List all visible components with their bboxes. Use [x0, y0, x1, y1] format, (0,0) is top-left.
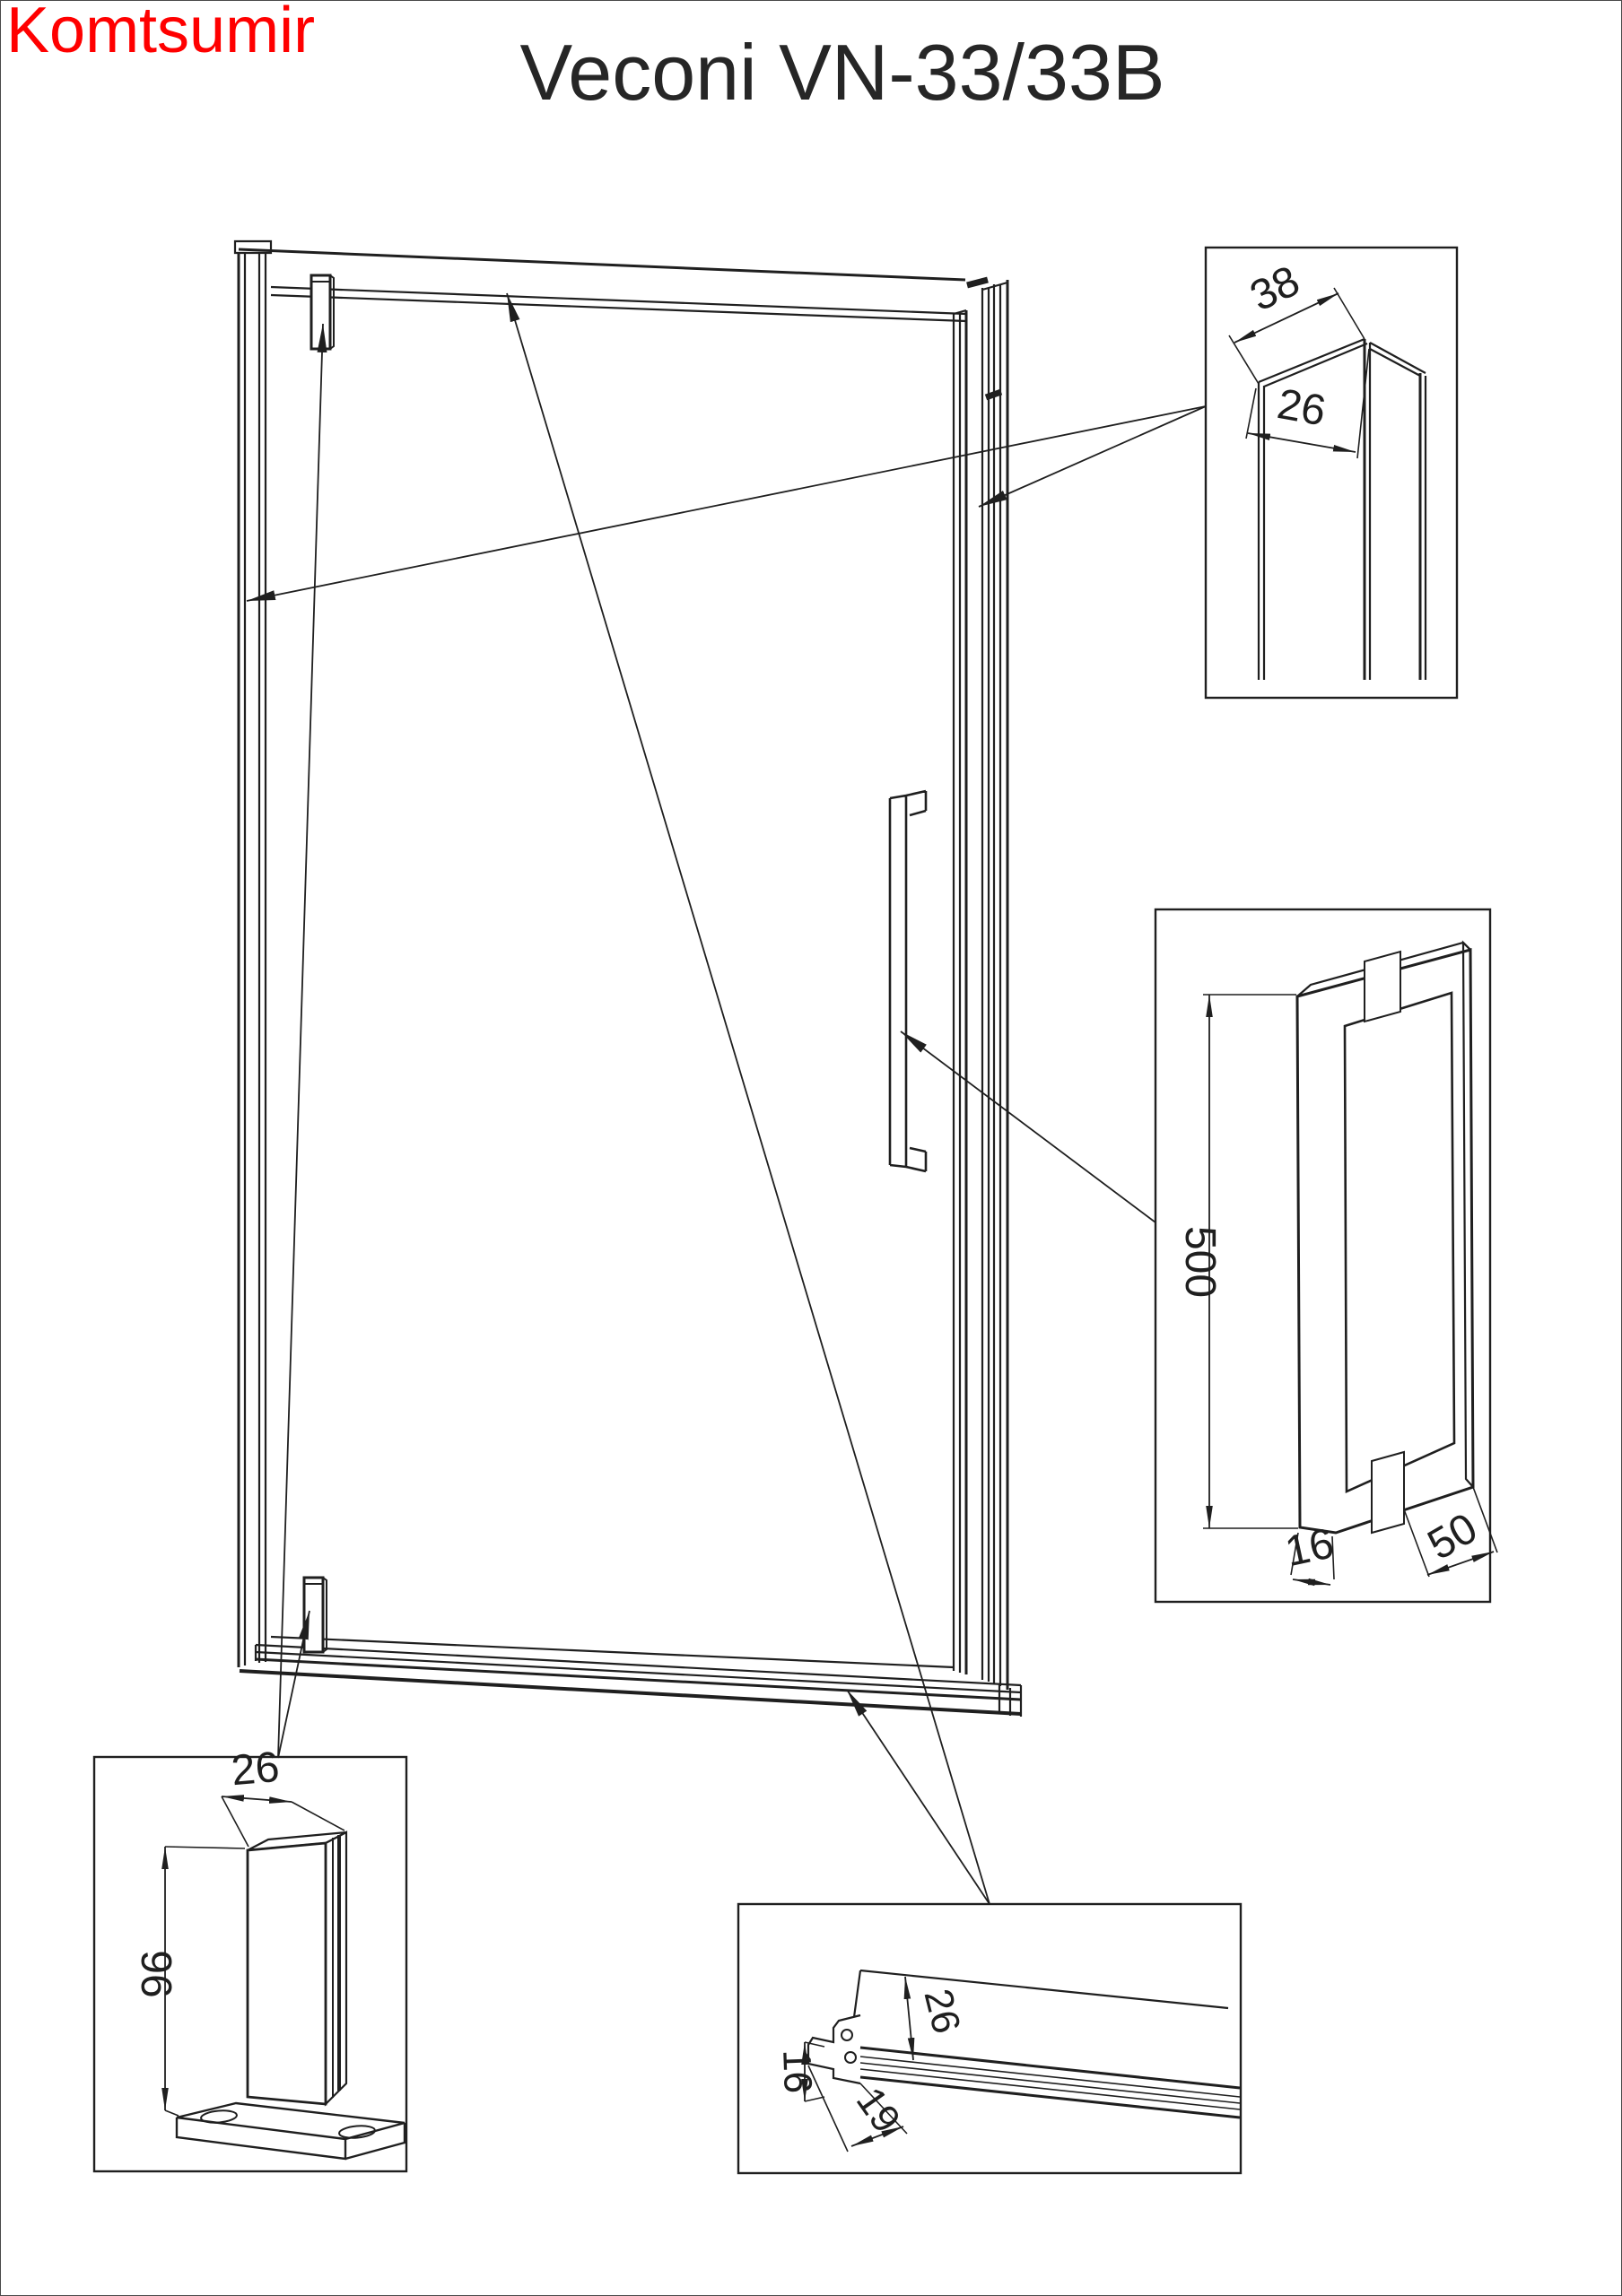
pivot-clamp-front-face — [248, 1843, 326, 2104]
left-wall-profile — [235, 241, 271, 1665]
handle-inner-outline — [1345, 993, 1454, 1492]
dim-16-line — [1293, 1579, 1330, 1585]
rail-screw-port-bottom — [845, 2052, 856, 2063]
dim-handle-depth: 50 — [1420, 1504, 1486, 1570]
leader-pivot-detail-to-top-hinge — [278, 324, 323, 1758]
wall-profile-detail: 38 26 — [1206, 248, 1457, 698]
technical-drawing: 38 26 500 16 50 — [1, 1, 1622, 2296]
dim-rail-height: 16 — [774, 2048, 820, 2094]
dim-pivot-height: 96 — [132, 1950, 179, 1997]
bottom-rail-detail: 26 16 19 — [738, 1904, 1241, 2173]
wall-profile-drawing-heavy — [1365, 339, 1420, 680]
right-stile-cap — [967, 280, 988, 285]
dim-rail-glass-inset: 26 — [915, 1985, 968, 2038]
pivot-hinge-detail: 26 96 — [94, 1744, 406, 2171]
leader-wall-profile-to-left-stile — [247, 406, 1206, 601]
dim-rail-depth: 19 — [848, 2080, 909, 2141]
top-hinge-bracket — [311, 275, 330, 349]
door-handle — [890, 791, 926, 1171]
leader-rail-detail-to-bottom-rail — [847, 1690, 990, 1904]
handle-detail: 500 16 50 — [1155, 909, 1497, 1602]
right-stile-lines — [954, 283, 1007, 1686]
leader-lines — [247, 293, 1206, 1904]
top-rail-glass-edge — [271, 287, 966, 321]
dim-wall-profile-width: 26 — [1274, 380, 1330, 435]
dim-26-pivot-line — [222, 1796, 292, 1802]
dim-wall-profile-depth: 38 — [1243, 257, 1307, 321]
rail-glass-edge — [854, 1970, 1228, 2017]
rail-screw-port-top — [842, 2030, 852, 2040]
pivot-clamp-side-face — [326, 1832, 346, 2104]
drawing-page: Komtsumir Veconi VN-33/33B — [0, 0, 1622, 2296]
handle-top-mount-notch — [1365, 952, 1400, 1022]
dim-handle-thickness: 16 — [1281, 1519, 1338, 1576]
top-rail-outer-edge — [239, 249, 965, 280]
leader-handle-detail-to-handle — [901, 1031, 1155, 1222]
leader-wall-profile-to-right-stile — [979, 406, 1206, 507]
door-assembly-drawing — [235, 241, 1021, 1717]
dim-26-rail-line — [905, 1977, 913, 2060]
dim-handle-height: 500 — [1176, 1226, 1224, 1298]
handle-bottom-mount-notch — [1372, 1452, 1404, 1533]
dim-pivot-width: 26 — [230, 1744, 282, 1795]
bottom-pivot-bracket — [304, 1578, 323, 1652]
